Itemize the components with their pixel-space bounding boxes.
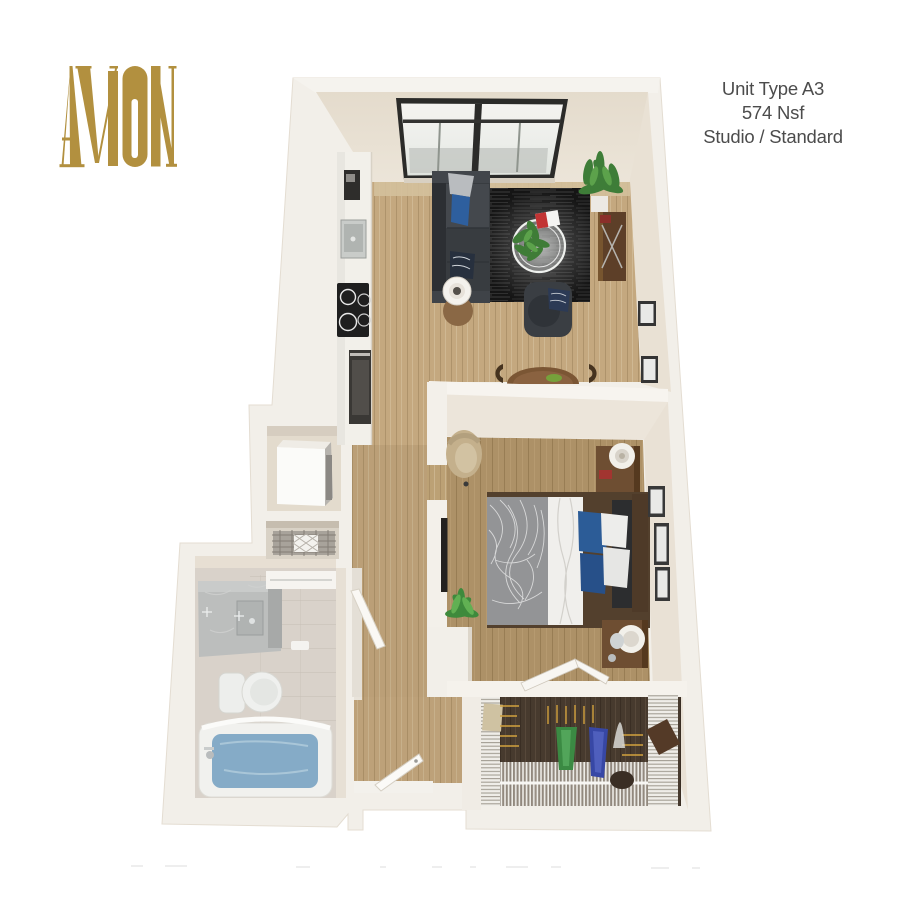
svg-text:Studio / Standard: Studio / Standard bbox=[703, 126, 843, 147]
svg-text:Unit Type A3: Unit Type A3 bbox=[722, 78, 824, 99]
svg-text:574 Nsf: 574 Nsf bbox=[742, 102, 805, 123]
